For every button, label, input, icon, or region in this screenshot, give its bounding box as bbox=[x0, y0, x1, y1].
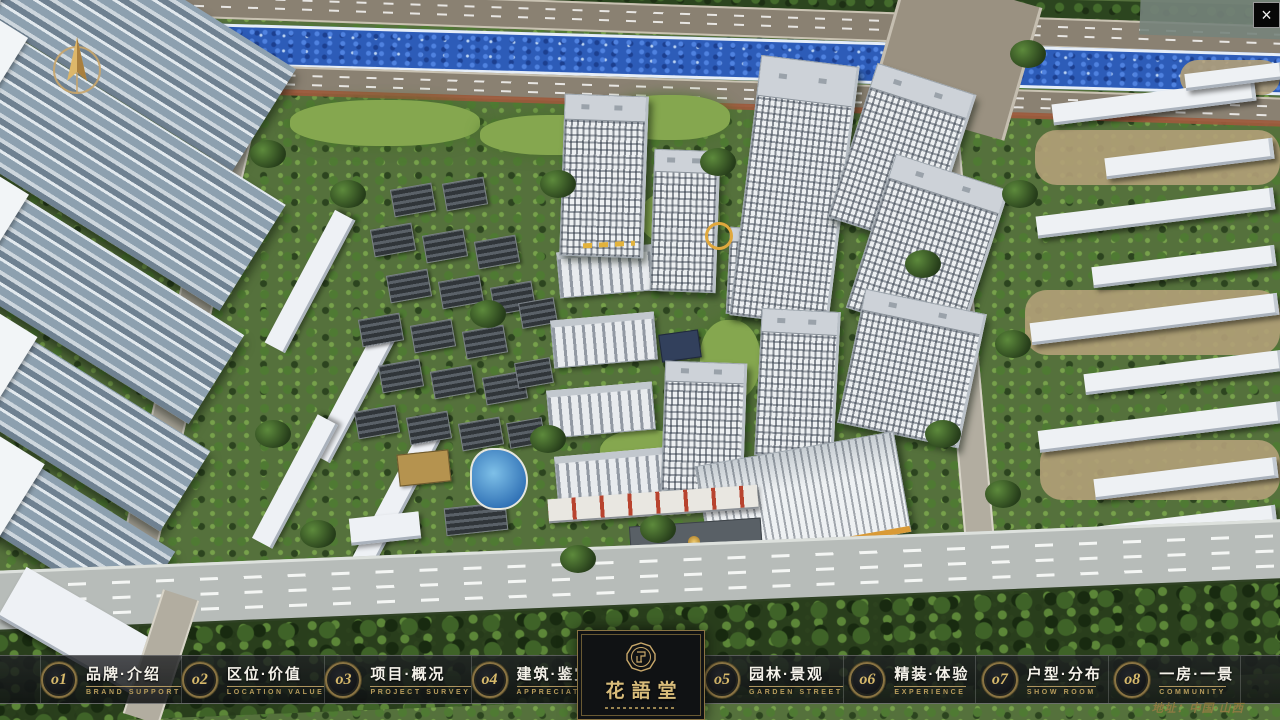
menu-label-en: GARDEN STREET bbox=[749, 686, 843, 696]
row-building bbox=[265, 210, 356, 353]
compass-icon bbox=[48, 34, 106, 100]
courtyard-houses bbox=[474, 235, 520, 270]
menu-label-zh: 一房·一景 bbox=[1159, 663, 1234, 684]
tree-cluster bbox=[700, 148, 736, 176]
menu-label-zh: 品牌·介绍 bbox=[86, 663, 161, 684]
pavilion bbox=[658, 329, 702, 362]
menu-number-badge: o2 bbox=[182, 662, 218, 698]
menu-label-zh: 区位·价值 bbox=[227, 663, 302, 684]
clubhouse bbox=[396, 449, 451, 486]
menu-label-zh: 精装·体验 bbox=[894, 663, 969, 684]
courtyard-houses bbox=[458, 417, 504, 452]
apartment-slab bbox=[1083, 350, 1280, 395]
tree-cluster bbox=[300, 520, 336, 548]
menu-label-en: PROJECT SURVEY bbox=[370, 686, 470, 696]
menu-group-left: o1 品牌·介绍BRAND SUPPORT o2 区位·价值LOCATION V… bbox=[40, 656, 578, 703]
courtyard-houses bbox=[514, 357, 554, 389]
tree-cluster bbox=[1002, 180, 1038, 208]
menu-number-badge: o4 bbox=[472, 662, 508, 698]
menu-label-zh: 园林·景观 bbox=[749, 663, 824, 684]
courtyard-houses bbox=[370, 223, 416, 258]
seal-emblem-icon bbox=[626, 642, 656, 672]
aerial-masterplan-render bbox=[0, 0, 1280, 720]
menu-item-brand[interactable]: o1 品牌·介绍BRAND SUPPORT bbox=[40, 656, 181, 703]
apartment-slab bbox=[1091, 245, 1276, 288]
menu-item-location[interactable]: o2 区位·价值LOCATION VALUE bbox=[181, 656, 325, 703]
courtyard-houses bbox=[358, 313, 404, 348]
menu-group-right: o5 园林·景观GARDEN STREET o6 精装·体验EXPERIENCE… bbox=[703, 656, 1241, 703]
residential-tower bbox=[754, 308, 841, 459]
apartment-slab bbox=[1036, 188, 1276, 239]
project-name: 花語堂 bbox=[598, 676, 683, 703]
building-rooftop bbox=[0, 0, 55, 23]
menu-item-project[interactable]: o3 项目·概况PROJECT SURVEY bbox=[324, 656, 470, 703]
close-button[interactable]: × bbox=[1253, 2, 1280, 28]
tree-cluster bbox=[905, 250, 941, 278]
project-logo-panel[interactable]: 花語堂 bbox=[577, 630, 705, 720]
tree-cluster bbox=[1010, 40, 1046, 68]
tree-cluster bbox=[540, 170, 576, 198]
courtyard-houses bbox=[354, 405, 400, 440]
sales-presentation-screen: × o1 品牌·介绍BRAND SUPPORT o2 区位·价值LOCATION… bbox=[0, 0, 1280, 720]
tree-cluster bbox=[530, 425, 566, 453]
lawn-patch bbox=[290, 100, 480, 146]
midrise-building bbox=[550, 312, 658, 369]
courtyard-houses bbox=[442, 177, 488, 212]
menu-item-community[interactable]: o8 一房·一景COMMUNITY bbox=[1108, 656, 1240, 703]
menu-number-badge: o3 bbox=[325, 662, 361, 698]
courtyard-houses bbox=[410, 319, 456, 354]
tree-cluster bbox=[250, 140, 286, 168]
courtyard-houses bbox=[422, 229, 468, 264]
menu-number-badge: o6 bbox=[849, 662, 885, 698]
tree-cluster bbox=[925, 420, 961, 448]
tree-cluster bbox=[255, 420, 291, 448]
menu-item-garden[interactable]: o5 园林·景观GARDEN STREET bbox=[703, 656, 843, 703]
menu-label-en: SHOW ROOM bbox=[1027, 686, 1096, 696]
project-address: 地址：中国·山西 bbox=[1152, 700, 1244, 716]
menu-number-badge: o1 bbox=[41, 662, 77, 698]
gatehouse bbox=[349, 511, 421, 545]
menu-number-badge: o5 bbox=[704, 662, 740, 698]
menu-label-zh: 户型·分布 bbox=[1027, 663, 1102, 684]
project-name-caption bbox=[605, 707, 677, 709]
menu-item-floorplan[interactable]: o7 户型·分布SHOW ROOM bbox=[975, 656, 1107, 703]
tree-cluster bbox=[330, 180, 366, 208]
tree-cluster bbox=[560, 545, 596, 573]
tree-cluster bbox=[640, 515, 676, 543]
menu-label-en: LOCATION VALUE bbox=[227, 686, 325, 696]
courtyard-houses bbox=[430, 365, 476, 400]
menu-label-en: BRAND SUPPORT bbox=[86, 686, 181, 696]
tree-cluster bbox=[995, 330, 1031, 358]
gold-landmark bbox=[705, 222, 733, 250]
menu-number-badge: o7 bbox=[982, 662, 1018, 698]
courtyard-houses bbox=[390, 183, 436, 218]
courtyard-houses bbox=[378, 359, 424, 394]
close-icon: × bbox=[1261, 5, 1272, 25]
courtyard-houses bbox=[386, 269, 432, 304]
tree-cluster bbox=[470, 300, 506, 328]
menu-label-en: COMMUNITY bbox=[1159, 686, 1226, 696]
menu-number-badge: o8 bbox=[1114, 662, 1150, 698]
tree-cluster bbox=[985, 480, 1021, 508]
menu-label-en: EXPERIENCE bbox=[894, 686, 965, 696]
courtyard-houses bbox=[406, 411, 452, 446]
courtyard-houses bbox=[462, 325, 508, 360]
menu-item-interior[interactable]: o6 精装·体验EXPERIENCE bbox=[843, 656, 975, 703]
swimming-pool bbox=[470, 448, 528, 510]
menu-label-zh: 项目·概况 bbox=[370, 663, 445, 684]
